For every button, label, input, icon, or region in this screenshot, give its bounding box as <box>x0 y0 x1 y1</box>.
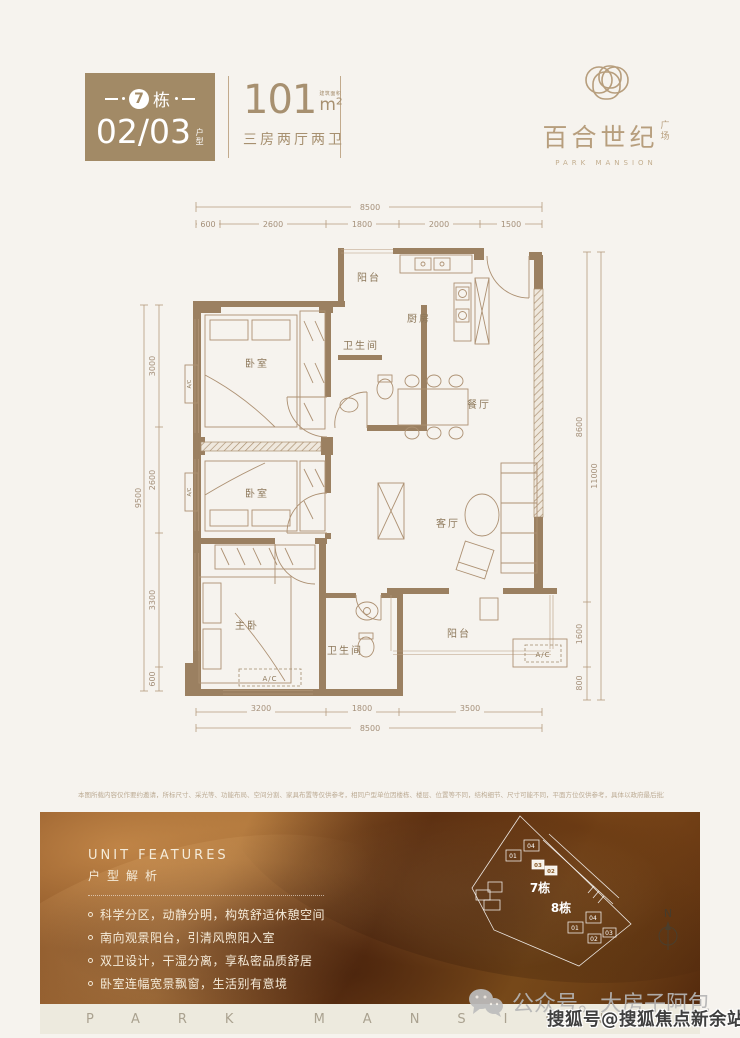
wechat-icon <box>468 987 504 1017</box>
brand-logo: 百合世纪 广 场 PARK MANSION <box>518 56 694 167</box>
dim-top-overall: 8500 <box>360 203 380 212</box>
dimension-top: 8500 600 2600 1800 2000 1500 <box>196 201 542 229</box>
badge-building-row: 7 栋 <box>105 86 195 111</box>
ac-label-bedroom2: A/C <box>187 487 193 496</box>
ac-units: A/C A/C A/C A/C <box>185 365 567 686</box>
bullet-icon <box>88 935 93 940</box>
dim-bottom-1: 3200 <box>251 704 271 713</box>
dim-left-1: 3000 <box>148 356 157 376</box>
dim-left-4: 600 <box>148 671 157 686</box>
dot-decor <box>122 97 125 100</box>
feature-band: UNIT FEATURES 户型解析 科学分区，动静分明，构筑舒适休憩空间 南向… <box>40 812 700 1004</box>
furniture <box>199 255 537 683</box>
unit-number: 02/03 <box>96 115 191 148</box>
building-7-label: 7栋 <box>530 880 550 895</box>
b8-unit-01: 01 <box>571 925 579 932</box>
feature-item: 卧室连幅宽景飘窗，生活别有意境 <box>88 975 356 992</box>
dim-left-2: 2600 <box>148 470 157 490</box>
feature-text: 南向观景阳台，引清风煦阳入室 <box>100 929 275 946</box>
features-title-en: UNIT FEATURES <box>88 848 356 863</box>
logo-knot-icon <box>575 56 637 114</box>
feature-item: 双卫设计，干湿分离，享私密品质舒居 <box>88 952 356 969</box>
room-layout: 三房两厅两卫 <box>243 129 339 149</box>
b7-unit-03: 03 <box>534 863 542 869</box>
building-suffix: 栋 <box>153 86 171 111</box>
dot-decor <box>175 97 178 100</box>
compass-north-label: N <box>664 907 672 920</box>
bullet-icon <box>88 981 93 986</box>
b8-unit-02: 02 <box>590 936 598 943</box>
dotted-divider <box>88 895 324 896</box>
building-badge: 7 栋 02/03 户型 <box>85 73 215 161</box>
room-living: 客厅 <box>436 517 460 530</box>
dim-bottom-3: 3500 <box>460 704 480 713</box>
b7-unit-01: 01 <box>509 853 517 860</box>
room-master: 主卧 <box>235 619 259 632</box>
dash-decor <box>182 98 195 100</box>
room-bath-top: 卫生间 <box>343 339 379 352</box>
feature-text: 双卫设计，干湿分离，享私密品质舒居 <box>100 952 313 969</box>
dim-top-3: 1800 <box>352 220 372 229</box>
room-bedroom2: 卧室 <box>245 487 269 500</box>
building-8-label: 8栋 <box>551 900 571 915</box>
ac-label-balcony: A/C <box>535 651 550 659</box>
room-bedroom1: 卧室 <box>245 357 269 370</box>
sohu-watermark: 搜狐号@搜狐焦点新余站 <box>547 1006 740 1031</box>
dim-right-1: 8600 <box>575 417 584 437</box>
room-bath-bottom: 卫生间 <box>327 644 363 657</box>
disclaimer-text: 本图所载内容仅作要约邀请，所标尺寸、采光等、功能布局、空间分割、家具布置等仅供参… <box>78 789 664 799</box>
room-balcony-top: 阳台 <box>357 271 381 284</box>
compass: N <box>652 906 684 956</box>
floor-plan: 8500 600 2600 1800 2000 1500 9500 3000 2… <box>135 193 615 773</box>
b8-unit-03: 03 <box>605 930 613 937</box>
b7-unit-02: 02 <box>547 869 555 875</box>
feature-item: 科学分区，动静分明，构筑舒适休憩空间 <box>88 906 356 923</box>
ac-label-bedroom1: A/C <box>187 379 193 388</box>
room-dining: 餐厅 <box>467 398 491 411</box>
unit-features: UNIT FEATURES 户型解析 科学分区，动静分明，构筑舒适休憩空间 南向… <box>88 848 356 998</box>
flyer-page: 7 栋 02/03 户型 101 建筑面积 m² 三房两厅两卫 <box>0 0 740 1038</box>
dim-top-1: 600 <box>200 220 215 229</box>
dim-right-3: 800 <box>575 675 584 690</box>
feature-text: 卧室连幅宽景飘窗，生活别有意境 <box>100 975 288 992</box>
compass-needle-icon <box>665 921 671 930</box>
area-info: 101 建筑面积 m² 三房两厅两卫 <box>243 80 339 149</box>
unit-type-label: 户型 <box>195 128 204 146</box>
dimension-bottom: 3200 1800 3500 8500 <box>196 703 542 734</box>
dim-right-overall: 11000 <box>590 463 599 488</box>
ac-label-master: A/C <box>262 675 277 683</box>
room-kitchen: 厨房 <box>407 312 431 325</box>
dim-right-2: 1600 <box>575 624 584 644</box>
dimension-right: 8600 1600 800 11000 <box>575 252 605 700</box>
dim-top-5: 1500 <box>501 220 521 229</box>
features-title-cn: 户型解析 <box>88 867 356 884</box>
dim-top-2: 2600 <box>263 220 283 229</box>
bullet-icon <box>88 958 93 963</box>
area-unit: m² <box>319 97 342 114</box>
dim-top-4: 2000 <box>429 220 449 229</box>
site-plan: 01 04 02 03 7栋 01 04 02 03 8栋 <box>448 812 700 984</box>
brand-name-suffix: 广 场 <box>661 121 670 143</box>
dim-left-3: 3300 <box>148 590 157 610</box>
dimension-left: 9500 3000 2600 3300 600 <box>135 305 163 691</box>
feature-item: 南向观景阳台，引清风煦阳入室 <box>88 929 356 946</box>
building-number: 7 <box>129 89 149 109</box>
brand-name-cn: 百合世纪 <box>542 118 658 154</box>
bullet-icon <box>88 912 93 917</box>
divider <box>228 76 229 158</box>
dim-bottom-overall: 8500 <box>360 724 380 733</box>
brand-name-en: PARK MANSION <box>518 159 694 167</box>
room-balcony-bottom: 阳台 <box>447 627 471 640</box>
room-labels: 阳台 厨房 卫生间 餐厅 卧室 卧室 主卧 卫生间 客厅 阳台 <box>235 271 491 657</box>
dash-decor <box>105 98 118 100</box>
dim-bottom-2: 1800 <box>352 704 372 713</box>
b8-unit-04: 04 <box>589 915 597 922</box>
area-value: 101 <box>243 80 316 120</box>
badge-unit-row: 02/03 户型 <box>96 115 204 148</box>
b7-unit-04: 04 <box>527 843 535 850</box>
dim-left-overall: 9500 <box>135 488 143 508</box>
feature-text: 科学分区，动静分明，构筑舒适休憩空间 <box>100 906 325 923</box>
